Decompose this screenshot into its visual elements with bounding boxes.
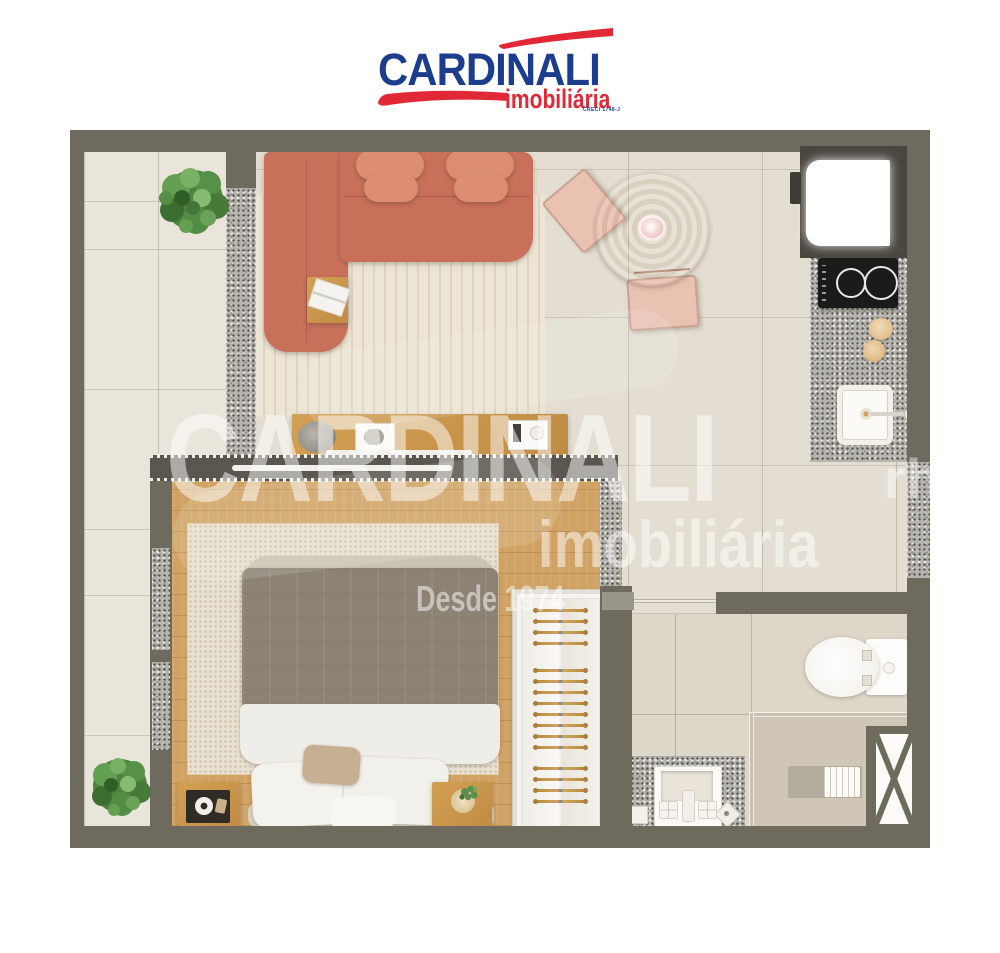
shower-glass-horizontal: [751, 713, 907, 716]
potted-plant-top-icon: [138, 148, 248, 258]
toilet-hinge-top: [862, 650, 872, 661]
wardrobe-doors: [521, 598, 600, 828]
floor-plan-page: CARDINALI imobiliária CRECI 1748-J: [0, 0, 1000, 953]
bed-gray-duvet: [242, 568, 498, 714]
clothes-hanger: [535, 713, 586, 716]
clothes-hanger: [535, 724, 586, 727]
clothes-hanger: [535, 609, 586, 612]
canister-1: [869, 318, 893, 340]
soap-dish-left: [659, 801, 678, 819]
burner-right: [864, 266, 898, 300]
clothes-hanger: [535, 691, 586, 694]
table-centerpiece-bowl: [638, 215, 666, 241]
clothes-hanger: [535, 778, 586, 781]
clothes-hanger: [535, 669, 586, 672]
drain-dot: [724, 811, 729, 816]
wardrobe: [513, 590, 608, 836]
wall-closet-right: [600, 586, 632, 826]
clothes-hanger: [535, 620, 586, 623]
clothes-hanger: [535, 746, 586, 749]
pillow-white-small: [329, 795, 396, 829]
vanity-faucet: [682, 790, 695, 822]
armchair-left-seat: [364, 174, 418, 202]
hanger-group: [522, 669, 599, 749]
clothes-hanger: [535, 735, 586, 738]
brand-logo: CARDINALI imobiliária CRECI 1748-J: [0, 0, 1000, 125]
pillow-tan: [302, 744, 362, 786]
tray-right-decor-dark: [513, 424, 521, 442]
toilet-bowl: [805, 637, 879, 697]
record-disc: [195, 797, 213, 815]
clothes-hanger: [535, 631, 586, 634]
toilet-hinge-bottom: [862, 675, 872, 686]
hanger-rows: [522, 609, 599, 803]
wall-bathroom-top: [716, 592, 907, 614]
tray-right-decor-ball: [530, 426, 544, 440]
clothes-hanger: [535, 800, 586, 803]
door-handle: [790, 172, 801, 204]
bench-towel: [824, 767, 860, 797]
clothes-hanger: [535, 642, 586, 645]
wall-bottom: [70, 826, 930, 848]
clothes-hanger: [535, 767, 586, 770]
shower-glass-vertical: [750, 713, 753, 826]
refrigerator: [806, 160, 890, 246]
toilet-flush-button: [883, 662, 895, 674]
clothes-hanger: [535, 789, 586, 792]
mini-plant-icon: [456, 782, 482, 808]
clothes-hanger: [535, 702, 586, 705]
sliding-door-track: [634, 599, 716, 603]
clothes-hanger: [535, 680, 586, 683]
logo-swoosh-bottom-icon: [376, 90, 508, 112]
canister-2: [863, 340, 885, 362]
hanger-group: [522, 767, 599, 803]
tray-left-decor: [364, 429, 384, 445]
shaft-x-box: [876, 734, 912, 824]
bedroom-window-curtain-2: [152, 662, 170, 750]
brand-creci: CRECI 1748-J: [583, 107, 620, 113]
bedroom-window-curtain-1: [152, 548, 170, 650]
armchair-right-seat: [454, 174, 508, 202]
kitchen-window-sill: [907, 462, 930, 578]
potted-plant-bottom-icon: [72, 740, 168, 836]
hanger-group: [522, 609, 599, 645]
cooktop-controls: [822, 265, 826, 301]
soap-dish-right: [698, 801, 717, 819]
bathroom-sliding-door: [602, 592, 634, 610]
burner-left: [836, 268, 866, 298]
bed-white-fold: [240, 704, 500, 764]
wall-closet-right-cap: [600, 481, 622, 586]
